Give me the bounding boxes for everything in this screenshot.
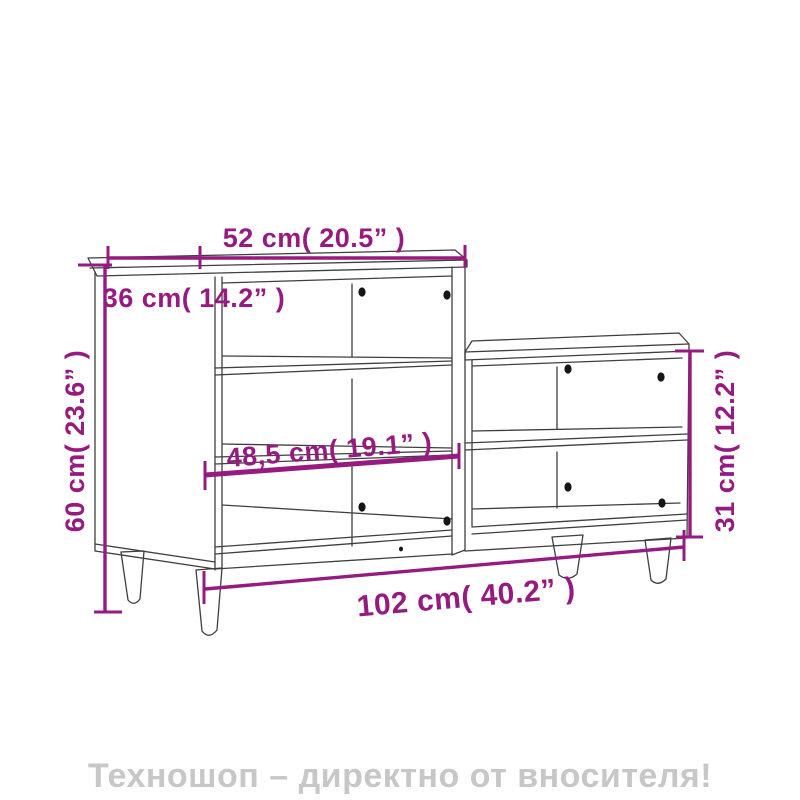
top-panel — [88, 250, 467, 276]
cabinet-diagram-canvas: 52 cm( 20.5” ) 36 cm( 14.2” ) 60 cm( 23.… — [0, 0, 800, 800]
footer-banner: Техношоп – директно от вносителя! — [0, 757, 800, 796]
shelf-left-upper — [215, 356, 452, 375]
leg-back-left — [121, 551, 144, 603]
dimension-right-height: 31 cm( 12.2” ) — [675, 350, 740, 537]
dimension-total-width: 102 cm( 40.2” ) — [204, 530, 684, 624]
dimension-inner-width: 48,5 cm( 19.1” ) — [205, 427, 459, 490]
footer-text: Техношоп – директно от вносителя! — [88, 757, 712, 795]
dim-top-width-label: 52 cm( 20.5” ) — [223, 223, 406, 253]
cam-fitting-dots — [358, 287, 665, 551]
shelf-right — [465, 427, 687, 450]
dim-height-label: 60 cm( 23.6” ) — [60, 350, 90, 533]
leg-front-left — [196, 568, 222, 635]
dim-right-height-label: 31 cm( 12.2” ) — [710, 350, 740, 533]
top-panel-right — [465, 333, 689, 360]
product-dimension-diagram: 52 cm( 20.5” ) 36 cm( 14.2” ) 60 cm( 23.… — [0, 0, 800, 800]
dimension-height: 60 cm( 23.6” ) — [60, 265, 122, 612]
bottom-panel-left — [215, 505, 452, 569]
dim-depth-label: 36 cm( 14.2” ) — [103, 283, 286, 313]
leg-front-right — [645, 538, 671, 583]
dim-total-width-label: 102 cm( 40.2” ) — [356, 572, 577, 624]
